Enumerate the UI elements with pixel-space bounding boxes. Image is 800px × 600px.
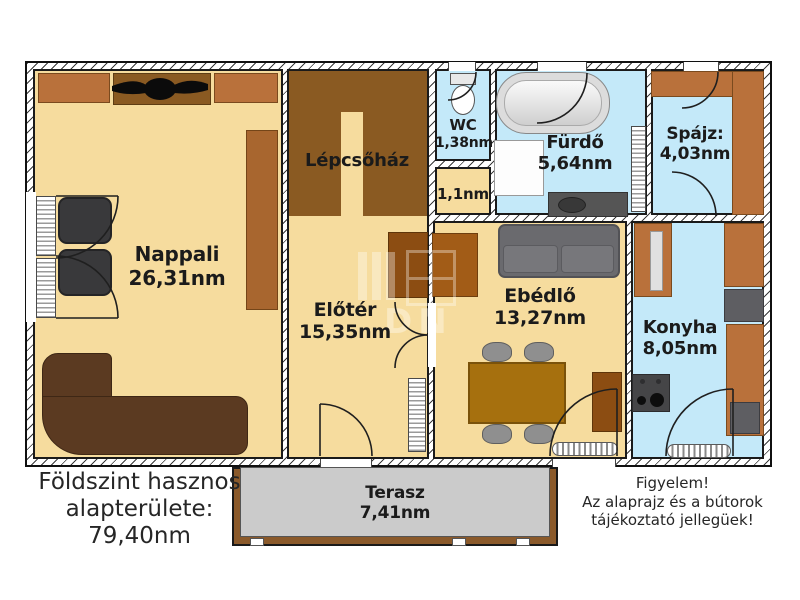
bathtub-basin [504, 80, 602, 126]
room-label-eloter: Előtér 15,35nm [285, 299, 405, 344]
dining-chair [482, 424, 512, 444]
dining-cabinet [432, 233, 478, 297]
terrace-rail-gap [516, 538, 530, 546]
radiator [667, 444, 731, 458]
burner-icon [656, 379, 661, 384]
room-area: 5,64nm [515, 153, 635, 174]
room-area: 15,35nm [285, 321, 405, 343]
room-name: Lépcsőház [292, 150, 422, 171]
door-opening-furdo [537, 62, 587, 71]
side-cabinet [592, 372, 622, 432]
hall-cabinet [388, 232, 428, 298]
area-summary-line: alapterülete: [12, 496, 267, 523]
oven [730, 402, 760, 434]
room-label-wc: WC 1,38nm [435, 117, 491, 151]
room-name: Fürdő [515, 132, 635, 153]
dining-chair [524, 342, 554, 362]
dining-table [468, 362, 566, 424]
area-summary-line: 79,40nm [12, 523, 267, 550]
room-label-konyha: Konyha 8,05nm [625, 317, 735, 359]
burner-icon [640, 379, 645, 384]
room-area: 1,1nm [433, 186, 493, 204]
kitchen-sink-icon [650, 231, 663, 291]
room-area: 1,38nm [435, 135, 491, 152]
door-opening-eloter-terasz [320, 459, 372, 467]
room-name: WC [435, 117, 491, 135]
burner-icon [650, 393, 664, 407]
room-name: Terasz [335, 483, 455, 503]
room-area: 13,27nm [480, 307, 600, 329]
room-name: Nappali [107, 243, 247, 267]
radiator [408, 378, 426, 452]
burner-icon [637, 396, 646, 405]
media-cabinet [113, 73, 211, 105]
disclaimer-text: Figyelem! Az alaprajz és a bútorok tájék… [550, 474, 795, 530]
area-summary-line: Földszint hasznos [12, 469, 267, 496]
dining-chair [524, 424, 554, 444]
armchair [58, 197, 112, 244]
room-area: 7,41nm [335, 503, 455, 523]
terrace-rail-gap [452, 538, 466, 546]
sofa-cushion [503, 245, 558, 273]
corner-sofa [42, 396, 248, 455]
room-area: 26,31nm [107, 267, 247, 291]
room-label-ebedlo: Ebédlő 13,27nm [480, 285, 600, 330]
shelf-unit [38, 73, 110, 103]
floorplan-canvas: DN Nappali 26,31nm [0, 0, 800, 600]
window-wall-backing [26, 192, 36, 322]
room-area: 8,05nm [625, 338, 735, 359]
door-opening-eloter-ebedlo [428, 303, 436, 367]
door-opening-spajz [683, 62, 719, 71]
disclaimer-line: tájékoztató jellegüek! [550, 511, 795, 530]
room-label-terasz: Terasz 7,41nm [335, 483, 455, 523]
room-name: Konyha [625, 317, 735, 338]
door-opening-ebedlo-terasz [552, 459, 616, 467]
area-summary-text: Földszint hasznos alapterülete: 79,40nm [12, 469, 267, 550]
radiator [552, 442, 618, 456]
armchair [58, 249, 112, 296]
kitchen-cabinet [724, 223, 764, 287]
balcony-door-leaf [36, 196, 56, 256]
balcony-door-leaf [36, 258, 56, 318]
room-name: Előtér [285, 299, 405, 321]
room-label-furdo: Fürdő 5,64nm [515, 132, 635, 174]
sink-icon [558, 197, 586, 213]
shelf-unit [214, 73, 278, 103]
stove [632, 374, 670, 412]
disclaimer-line: Figyelem! [550, 474, 795, 493]
room-label-1-1nm: 1,1nm [433, 186, 493, 204]
room-name: Ebédlő [480, 285, 600, 307]
tall-cabinet [246, 130, 278, 310]
toilet-tank-icon [450, 73, 476, 85]
door-opening-wc [448, 62, 476, 71]
dining-chair [482, 342, 512, 362]
toilet-icon [451, 85, 475, 115]
room-name: Spájz: [640, 124, 750, 144]
disclaimer-line: Az alaprajz és a bútorok [550, 493, 795, 512]
room-label-nappali: Nappali 26,31nm [107, 243, 247, 290]
sofa-cushion [561, 245, 614, 273]
room-label-lepcsohaz: Lépcsőház [292, 150, 422, 171]
room-label-spajz: Spájz: 4,03nm [640, 124, 750, 164]
room-area: 4,03nm [640, 144, 750, 164]
